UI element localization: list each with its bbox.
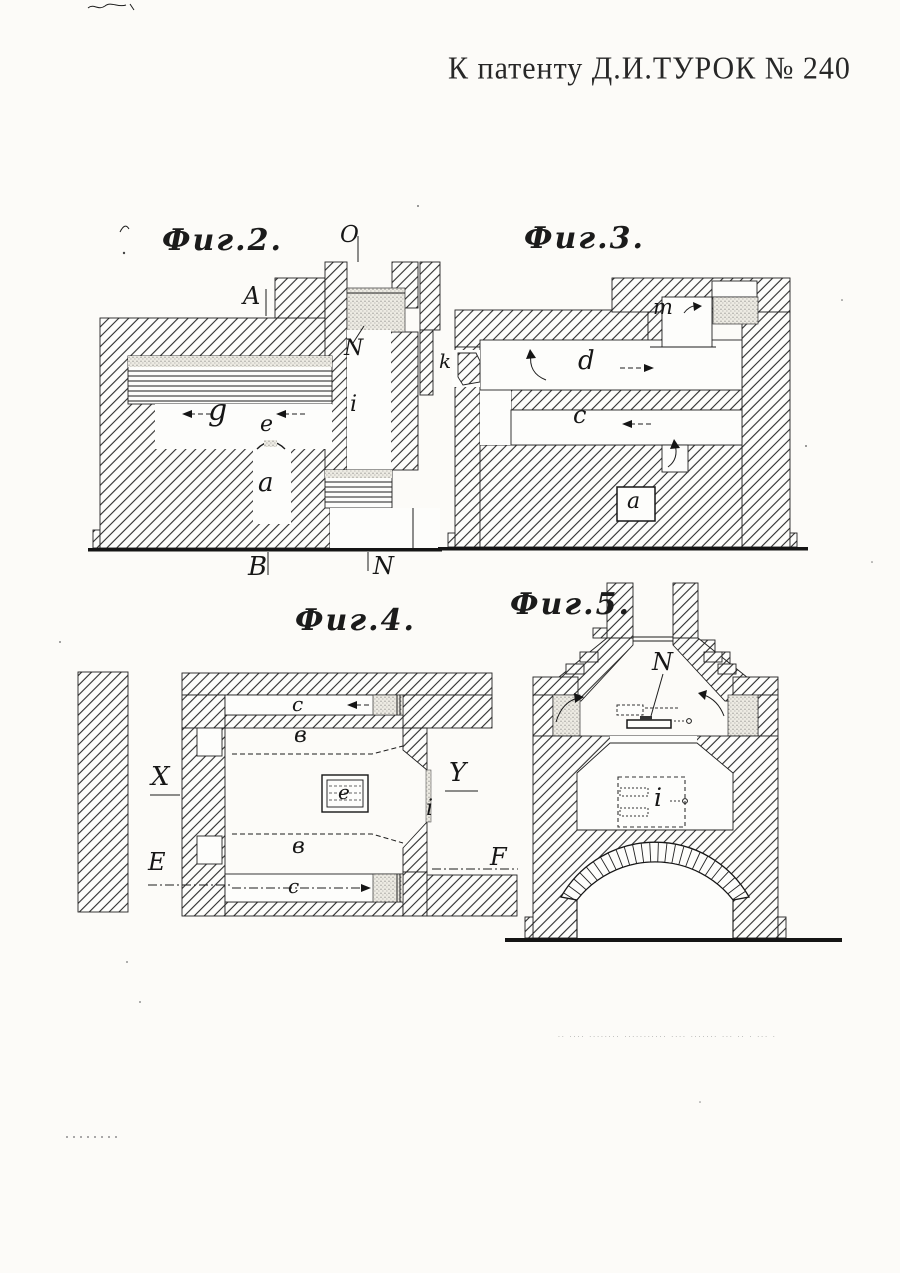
fig3-label-d: d (578, 348, 595, 374)
fig2-label-o: O (340, 224, 359, 247)
fig2-label-a-section: A (243, 284, 260, 308)
patent-drawing-sheet: К патенту Д.И.ТУРОК № 240 (0, 0, 900, 1273)
fig4-label-v-bottom: в (292, 836, 305, 858)
fig5-label-i: i (654, 785, 662, 810)
fig5-drawing (500, 575, 850, 960)
fig4-label-e-section: E (148, 850, 166, 874)
fig4-label-e: e (338, 782, 350, 802)
fig2-label-n-damper: N (344, 338, 363, 360)
fig5-title: Фиг.5. (510, 590, 631, 620)
fig2-drawing (80, 225, 450, 590)
fig4-label-y-section: Y (449, 760, 466, 786)
fig2-label-n-section: N (373, 554, 394, 578)
fig3-label-k: k (439, 351, 451, 371)
fig4-label-f-section: F (490, 845, 507, 869)
fig3-label-a: a (627, 491, 640, 513)
fig2-label-b-section: B (248, 554, 267, 580)
fig4-label-i: i (426, 798, 433, 820)
fig2-label-i: i (350, 394, 357, 416)
fig4-label-c-bottom: c (288, 876, 299, 896)
fig4-title: Фиг.4. (295, 606, 416, 636)
fig4-label-x-section: X (151, 764, 170, 790)
fig3-label-m: m (653, 297, 673, 318)
fig4-label-c-top: c (292, 694, 303, 714)
fig2-label-g: g (208, 396, 227, 426)
fig3-label-c: c (573, 403, 586, 427)
fig4-label-v-top: в (294, 725, 307, 747)
fig3-drawing (430, 215, 815, 560)
fig2-label-e: e (260, 414, 273, 436)
fig5-label-n-damper: N (652, 650, 673, 674)
fig2-label-a: a (258, 470, 274, 496)
fig2-title: Фиг.2. (162, 226, 283, 256)
fig3-title: Фиг.3. (524, 224, 645, 254)
